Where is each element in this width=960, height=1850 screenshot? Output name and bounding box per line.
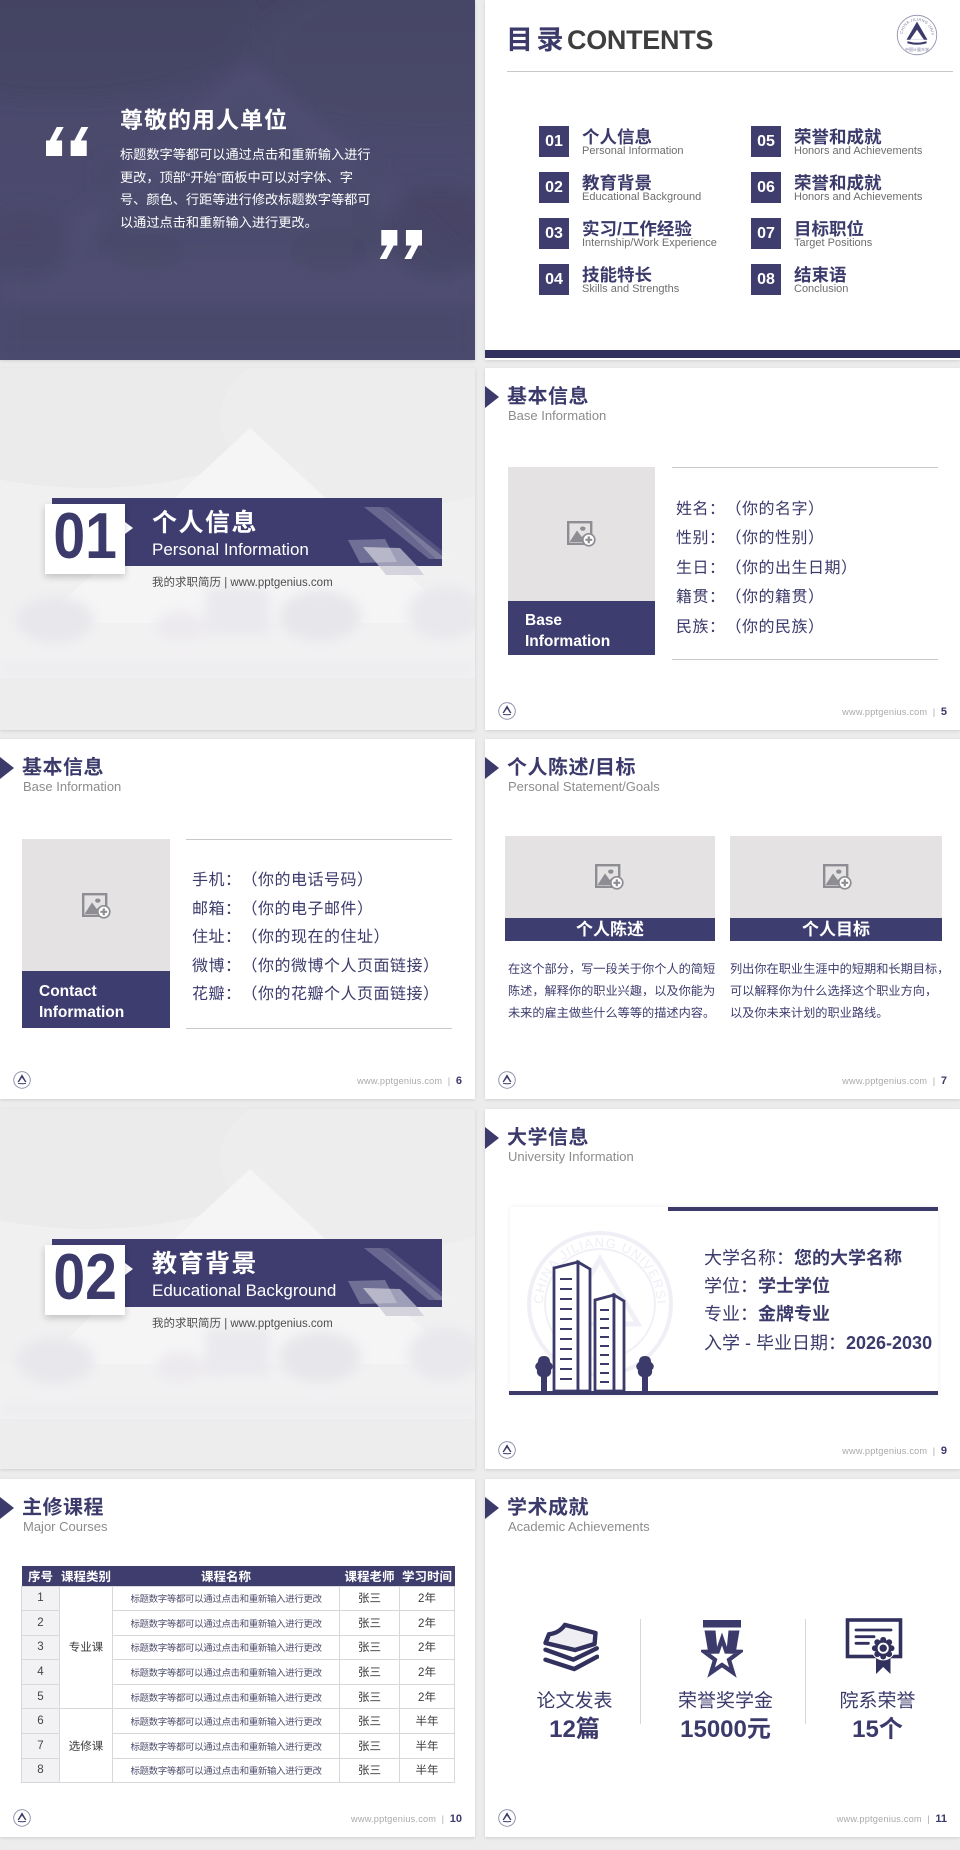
svg-text:中国计量大学: 中国计量大学 <box>905 46 929 52</box>
